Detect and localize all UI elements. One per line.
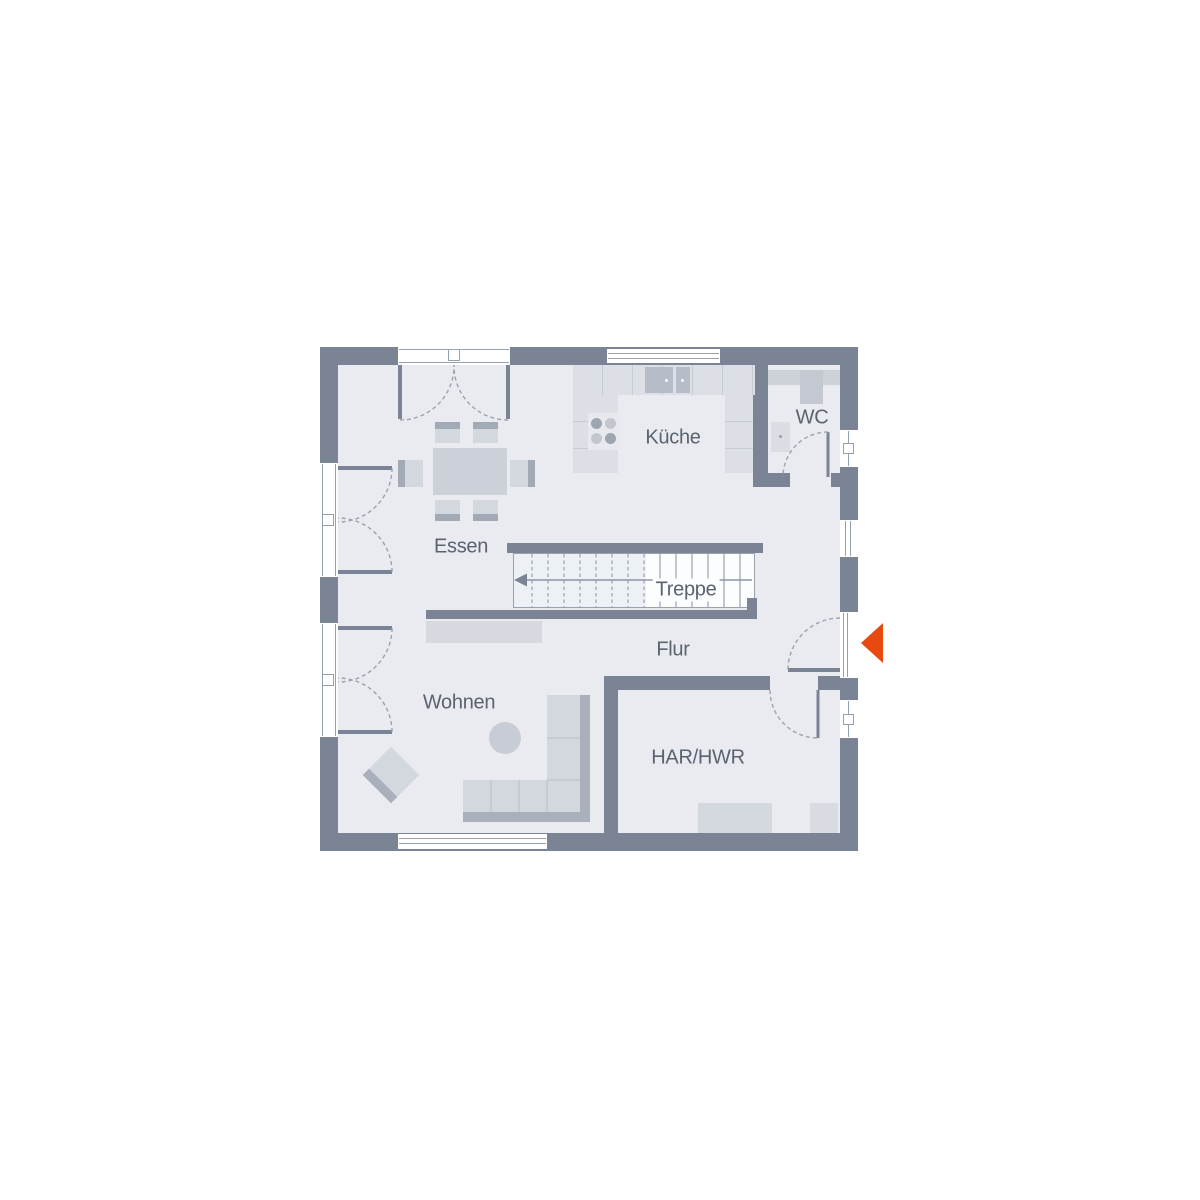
wc-door-stub: [831, 473, 840, 487]
room-label-essen: Essen: [434, 536, 488, 559]
room-label-wc: WC: [796, 407, 829, 430]
dining-chair: [473, 500, 498, 521]
door-handle: [448, 349, 460, 361]
stair-top-rail: [507, 543, 763, 553]
window-glass-line: [850, 521, 851, 556]
terrace-door-top: [398, 347, 510, 365]
chair-backrest: [473, 514, 498, 521]
burner: [605, 433, 616, 444]
dining-chair: [473, 422, 498, 443]
cooktop: [588, 413, 620, 450]
window-glass-line: [608, 358, 719, 359]
dining-chair: [510, 460, 535, 487]
har-appliance: [698, 803, 772, 833]
window-handle: [843, 714, 854, 725]
coffee-table: [489, 722, 521, 754]
chair-backrest: [473, 422, 498, 429]
dining-chair: [435, 422, 460, 443]
room-label-har-hwr: HAR/HWR: [651, 747, 744, 770]
page-canvas: Küche WC Essen Treppe Flur Wohnen HAR/HW…: [0, 0, 1200, 1200]
window-glass-line: [399, 838, 546, 839]
door-frame-line: [843, 613, 844, 677]
door-frame-line: [335, 464, 336, 576]
room-label-flur: Flur: [656, 639, 689, 662]
dining-chair: [398, 460, 423, 487]
sink-drain: [779, 435, 782, 438]
kitchen-sink-small: [676, 367, 690, 393]
floor-plan: Küche WC Essen Treppe Flur Wohnen HAR/HW…: [320, 347, 858, 851]
dining-chair: [435, 500, 460, 521]
window-handle: [843, 443, 854, 454]
burner: [591, 418, 602, 429]
har-window: [840, 700, 858, 738]
chair-backrest: [528, 460, 535, 487]
wc-bottom-wall: [753, 473, 790, 487]
wc-sink: [771, 422, 790, 452]
room-label-kueche: Küche: [645, 427, 700, 450]
har-left-wall: [604, 676, 618, 833]
har-appliance: [810, 803, 838, 833]
kitchen-sink: [645, 367, 673, 393]
window-glass-line: [608, 353, 719, 354]
window-glass-line: [399, 843, 546, 844]
chair-backrest: [435, 514, 460, 521]
door-frame-line: [399, 362, 509, 363]
toilet: [800, 370, 823, 404]
har-door-stub: [818, 676, 840, 690]
chair-backrest: [435, 422, 460, 429]
door-handle: [322, 514, 334, 526]
har-top-wall: [604, 676, 770, 690]
wc-window: [840, 430, 858, 467]
dining-table: [433, 448, 507, 495]
entrance-arrow-icon: [861, 623, 883, 663]
sink-drain: [681, 379, 684, 382]
sideboard: [426, 621, 542, 643]
terrace-door-essen: [320, 463, 338, 577]
door-frame-line: [335, 624, 336, 736]
door-handle: [322, 674, 334, 686]
kitchen-counter-right: [725, 395, 753, 473]
chair-backrest: [398, 460, 405, 487]
entrance-door: [840, 612, 858, 678]
room-label-treppe: Treppe: [653, 579, 720, 602]
burner: [605, 418, 616, 429]
stair-railing-end: [747, 598, 757, 619]
terrace-door-wohnen: [320, 623, 338, 737]
sink-drain: [665, 379, 668, 382]
stair-window: [840, 520, 858, 557]
burner: [591, 433, 602, 444]
wc-left-wall: [753, 365, 768, 487]
door-frame-line: [847, 613, 848, 677]
room-label-wohnen: Wohnen: [423, 692, 495, 715]
wohnen-window: [398, 834, 547, 849]
window-glass-line: [845, 521, 846, 556]
sofa-backrest: [580, 695, 590, 822]
sofa-backrest: [463, 812, 590, 822]
kitchen-window: [607, 349, 720, 363]
stair-railing: [426, 610, 757, 619]
